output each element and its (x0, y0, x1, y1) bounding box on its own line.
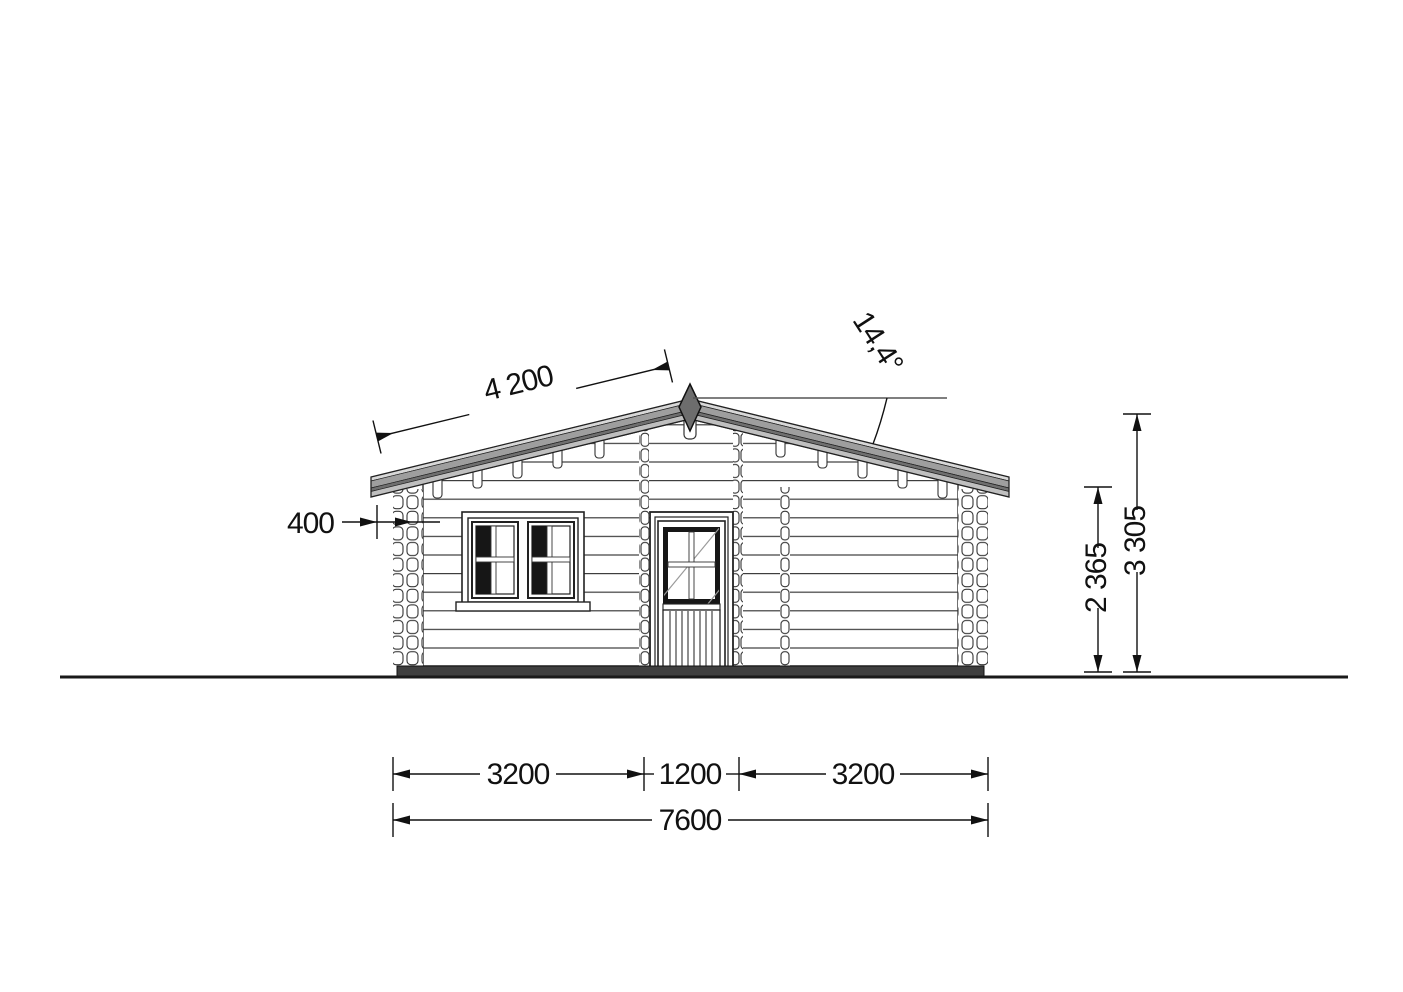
dim-arrow (376, 429, 395, 442)
window-sill (456, 602, 590, 611)
dim-overhang-label: 400 (287, 507, 334, 540)
dim-ridge-height-label: 3 305 (1119, 506, 1152, 576)
dim-arrow (1133, 414, 1142, 431)
door-mid-rail (663, 604, 720, 610)
dim-arrow (393, 816, 410, 825)
dim-ridge-height: 3 305 (1119, 414, 1152, 672)
joint-column-right-of-door (733, 429, 743, 666)
dim-arrow (1133, 655, 1142, 672)
joint-column-left-of-door (639, 429, 649, 666)
dim-arrow (1094, 487, 1103, 504)
angle-arc (873, 398, 887, 444)
dim-arrow (627, 770, 644, 779)
dim-right-section-label: 3200 (832, 758, 895, 791)
corner-logs-left (393, 489, 423, 666)
corner-logs-right (958, 489, 988, 666)
joint-column-right-wall (780, 487, 790, 666)
dim-arrow (1094, 655, 1103, 672)
dim-arrow (971, 816, 988, 825)
window-muntin-horizontal (476, 557, 514, 562)
dim-roof-angle-label: 14,4° (846, 306, 909, 379)
building (371, 384, 1009, 676)
dim-arrow (393, 770, 410, 779)
dim-total-width-row: 7600 (393, 803, 988, 837)
dim-sections-row: 3200 1200 3200 (393, 757, 988, 791)
window-muntin-horizontal (532, 557, 570, 562)
dim-arrow (739, 770, 756, 779)
dim-arrow (651, 362, 670, 375)
dim-total-width-label: 7600 (659, 804, 722, 837)
dim-arrow (360, 518, 377, 527)
door-muntin-horizontal (668, 562, 715, 567)
dim-left-section-label: 3200 (487, 758, 550, 791)
window-sash-right (528, 522, 574, 598)
dim-arrow (971, 770, 988, 779)
dim-wall-height-label: 2 365 (1080, 543, 1113, 613)
drawing-canvas: 4 200 14,4° 400 2 365 (0, 0, 1403, 992)
window (456, 512, 590, 611)
dim-wall-height: 2 365 (1080, 487, 1113, 672)
elevation-drawing: 4 200 14,4° 400 2 365 (0, 0, 1403, 992)
base-beam (397, 666, 984, 676)
dim-door-section-label: 1200 (659, 758, 722, 791)
dim-roof-slope-label: 4 200 (480, 359, 556, 408)
door (650, 512, 733, 674)
window-sash-left (472, 522, 518, 598)
